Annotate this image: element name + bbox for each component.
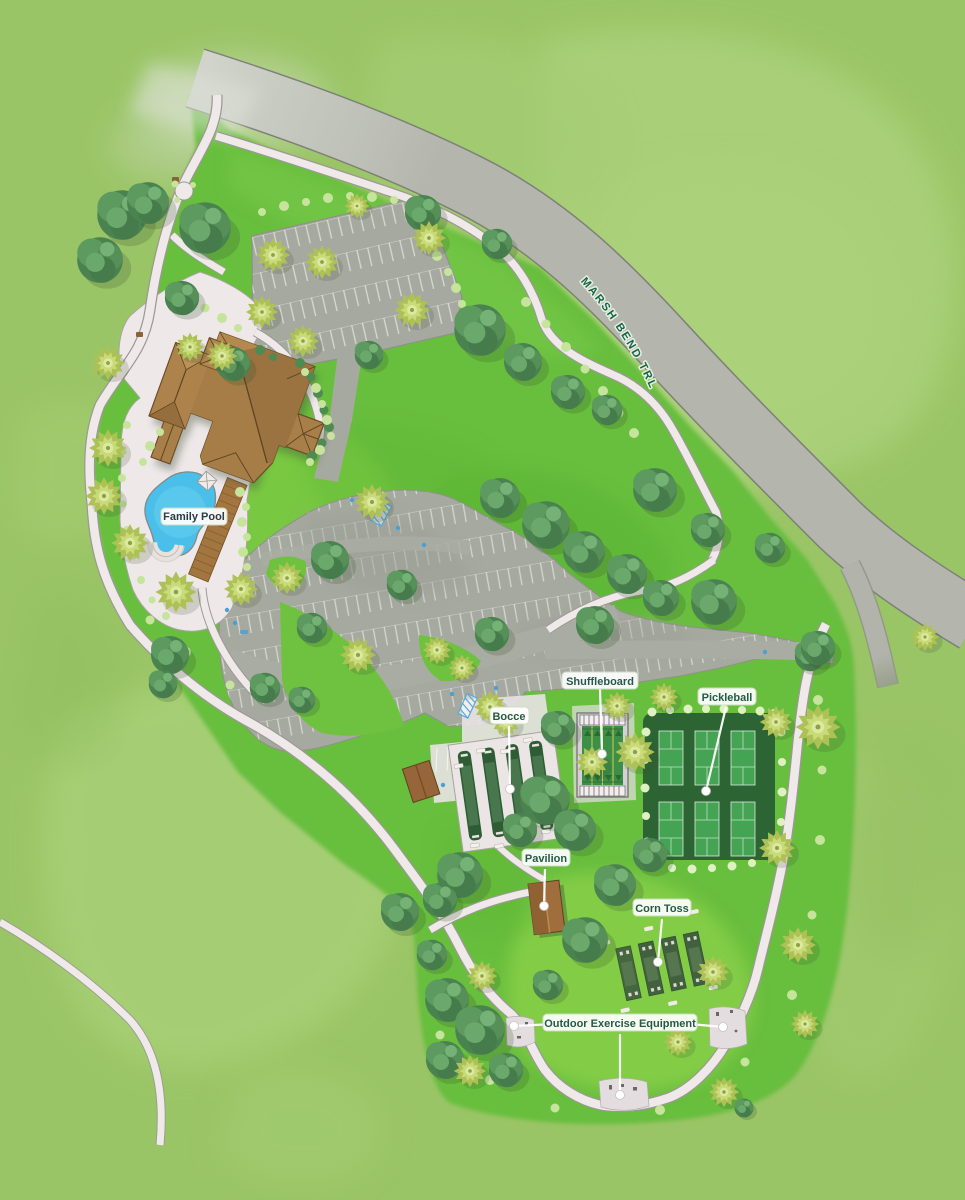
svg-text:Shuffleboard: Shuffleboard [566, 676, 634, 688]
svg-text:Pickleball: Pickleball [702, 692, 753, 704]
svg-text:Bocce: Bocce [492, 711, 525, 723]
svg-text:Family Pool: Family Pool [163, 511, 225, 523]
svg-text:Outdoor Exercise Equipment: Outdoor Exercise Equipment [544, 1018, 696, 1030]
svg-text:Corn Toss: Corn Toss [635, 903, 689, 915]
svg-text:Pavilion: Pavilion [525, 853, 567, 865]
